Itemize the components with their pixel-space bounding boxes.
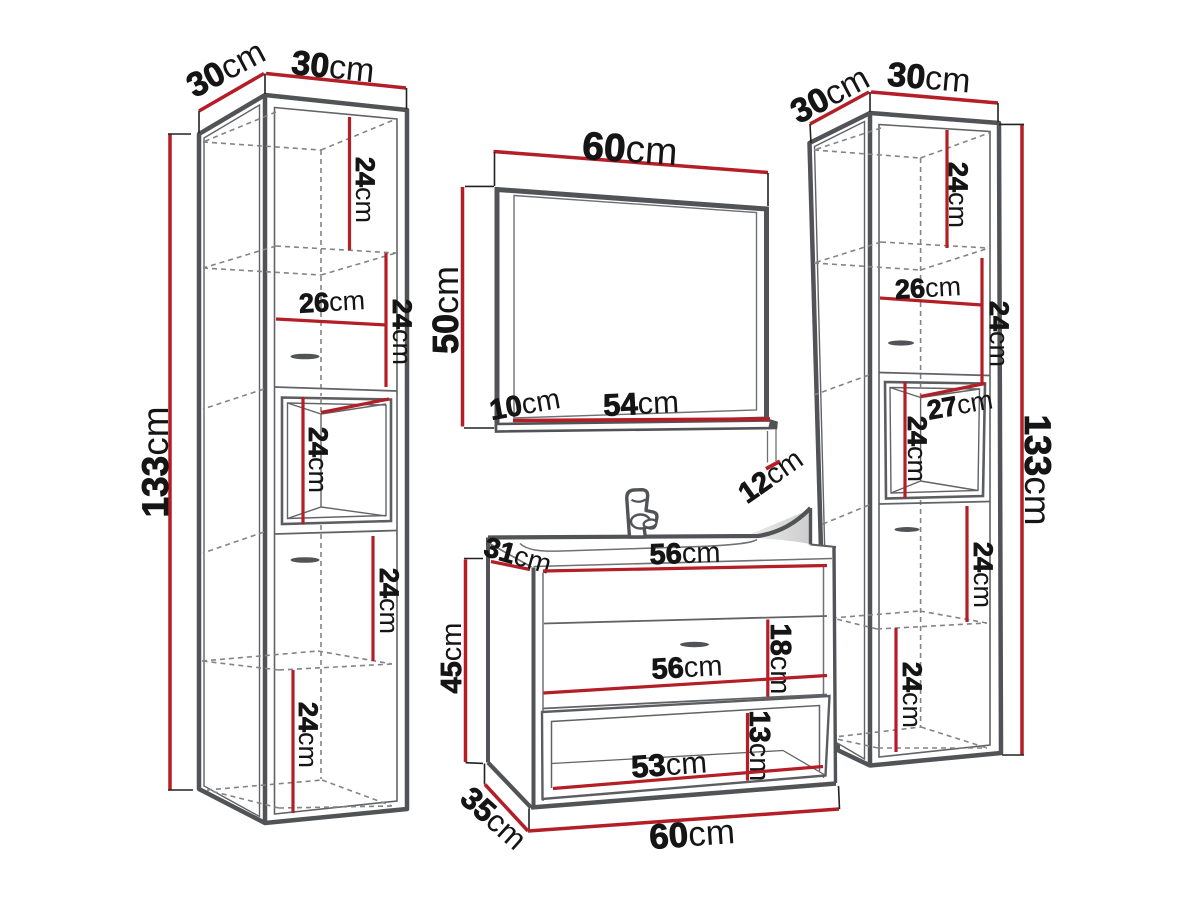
svg-text:50cm: 50cm	[425, 266, 466, 354]
svg-text:54cm: 54cm	[602, 384, 680, 423]
svg-text:24cm: 24cm	[303, 427, 333, 493]
svg-text:56cm: 56cm	[651, 650, 724, 686]
svg-text:24cm: 24cm	[350, 157, 380, 223]
svg-text:26cm: 26cm	[894, 271, 962, 304]
svg-text:53cm: 53cm	[630, 744, 708, 784]
svg-text:133cm: 133cm	[1018, 414, 1059, 525]
svg-text:60cm: 60cm	[648, 812, 736, 857]
svg-text:133cm: 133cm	[135, 406, 176, 517]
svg-text:26cm: 26cm	[298, 285, 366, 318]
svg-text:24cm: 24cm	[387, 299, 417, 365]
svg-text:56cm: 56cm	[649, 537, 721, 571]
svg-text:60cm: 60cm	[581, 124, 679, 174]
svg-text:24cm: 24cm	[897, 662, 927, 728]
svg-text:30cm: 30cm	[886, 55, 972, 100]
svg-text:24cm: 24cm	[293, 702, 323, 768]
svg-text:24cm: 24cm	[984, 301, 1014, 367]
svg-text:24cm: 24cm	[943, 162, 973, 228]
svg-text:24cm: 24cm	[374, 568, 404, 634]
svg-text:24cm: 24cm	[968, 542, 998, 608]
svg-text:45cm: 45cm	[436, 623, 468, 694]
svg-text:24cm: 24cm	[902, 416, 932, 482]
svg-text:18cm: 18cm	[764, 624, 796, 695]
